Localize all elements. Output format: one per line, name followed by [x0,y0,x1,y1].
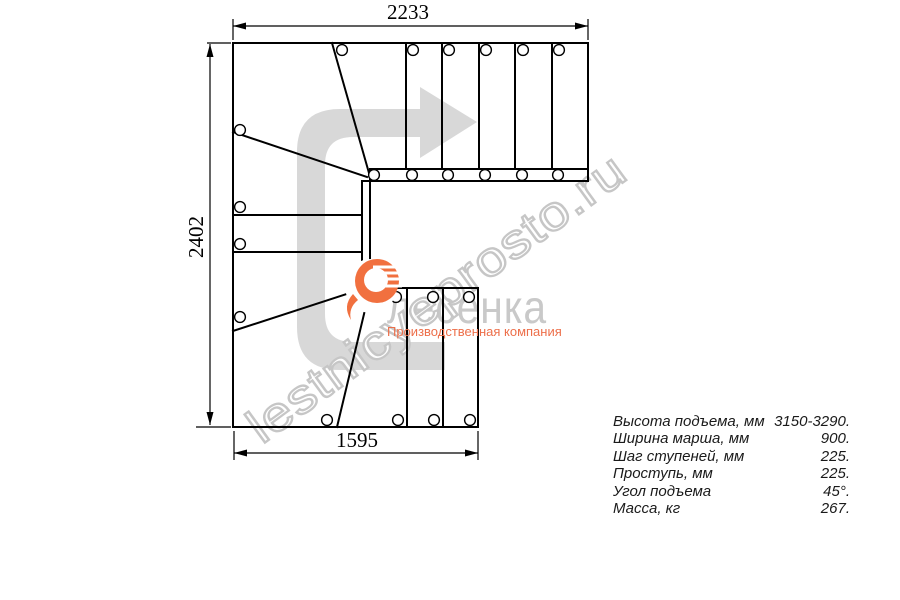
spec-row-4: Угол подъема45°. [613,483,850,500]
fastener-circle [235,239,246,250]
spec-value: 45°. [823,483,850,500]
dim-left-label: 2402 [184,216,208,258]
spec-label: Шаг ступеней, мм [613,448,744,465]
fastener-circle [408,45,419,56]
spec-value: 225. [821,465,850,482]
fastener-circle [322,415,333,426]
spec-row-2: Шаг ступеней, мм225. [613,448,850,465]
spec-row-3: Проступь, мм225. [613,465,850,482]
plan-line [332,43,369,173]
spec-label: Масса, кг [613,500,680,517]
dimension-arrowhead [233,23,246,30]
dimension-arrowhead [234,450,247,457]
logo-subtitle: Производственная компания [387,324,562,339]
spec-value: 3150-3290. [774,413,850,430]
fastener-circle [553,170,564,181]
fastener-circle [369,170,380,181]
spec-label: Высота подъема, мм [613,413,765,430]
fastener-circle [464,292,475,303]
fastener-circle [337,45,348,56]
fastener-circle [517,170,528,181]
spec-label: Проступь, мм [613,465,713,482]
spec-value: 900. [821,430,850,447]
fastener-circle [393,415,404,426]
spec-label: Ширина марша, мм [613,430,749,447]
spec-value: 267. [821,500,850,517]
specs-table: Высота подъема, мм3150-3290.Ширина марша… [613,413,850,517]
spec-label: Угол подъема [613,483,711,500]
spec-row-5: Масса, кг267. [613,500,850,517]
fastener-circle [429,415,440,426]
dimension-arrowhead [207,44,214,57]
fastener-circle [407,170,418,181]
fastener-circle [554,45,565,56]
fastener-circle [235,125,246,136]
dim-top-label: 2233 [387,0,429,24]
fastener-circle [518,45,529,56]
spec-row-0: Высота подъема, мм3150-3290. [613,413,850,430]
fastener-circle [235,202,246,213]
spec-row-1: Ширина марша, мм900. [613,430,850,447]
dim-bottom-label: 1595 [336,428,378,452]
fastener-circle [481,45,492,56]
fastener-circle [465,415,476,426]
dimension-arrowhead [575,23,588,30]
dimension-arrowhead [465,450,478,457]
fastener-circle [443,170,454,181]
spec-value: 225. [821,448,850,465]
fastener-circle [235,312,246,323]
blueprint-canvas: лесенка lestnicyeprosto.ru 2233 2402 159… [0,0,900,600]
fastener-circle [480,170,491,181]
dimension-arrowhead [207,412,214,425]
fastener-circle [428,292,439,303]
fastener-circle [444,45,455,56]
